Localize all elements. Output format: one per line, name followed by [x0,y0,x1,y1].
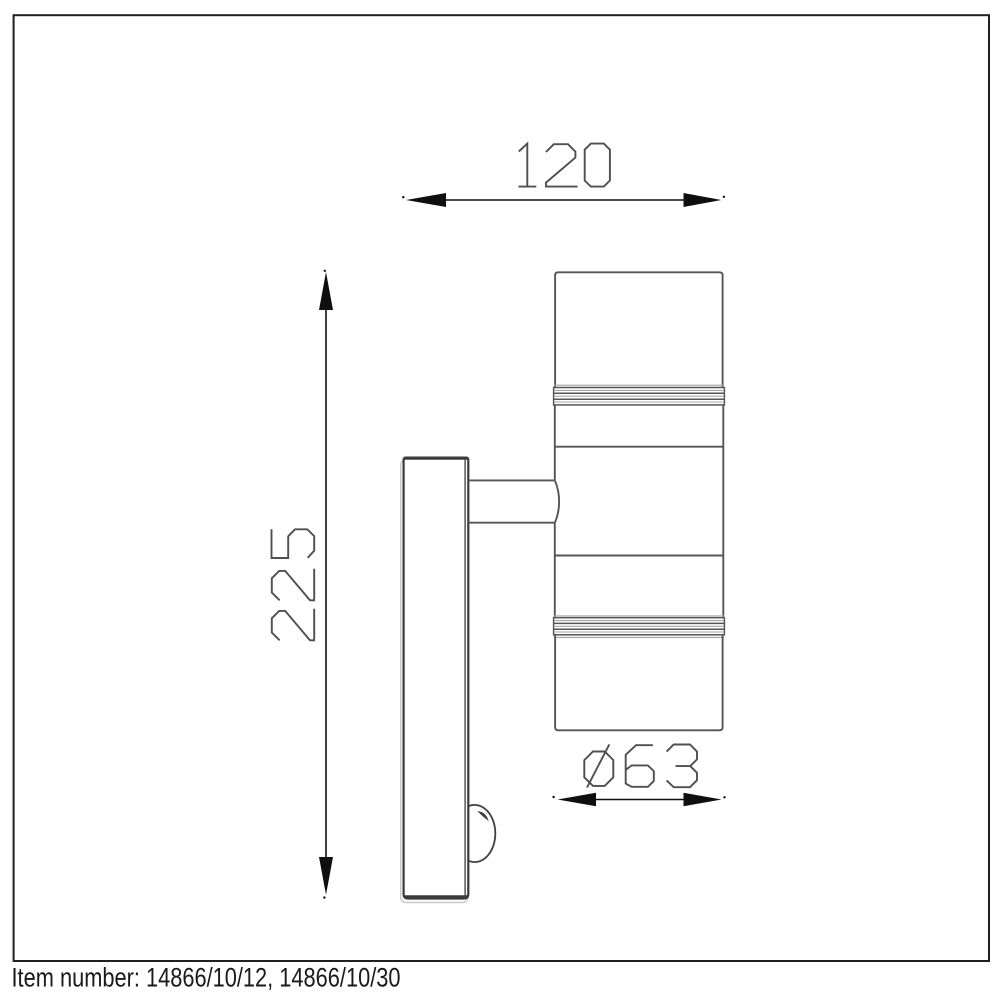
svg-text:Item number: 14866/10/12, 1486: Item number: 14866/10/12, 14866/10/30 [12,962,401,992]
